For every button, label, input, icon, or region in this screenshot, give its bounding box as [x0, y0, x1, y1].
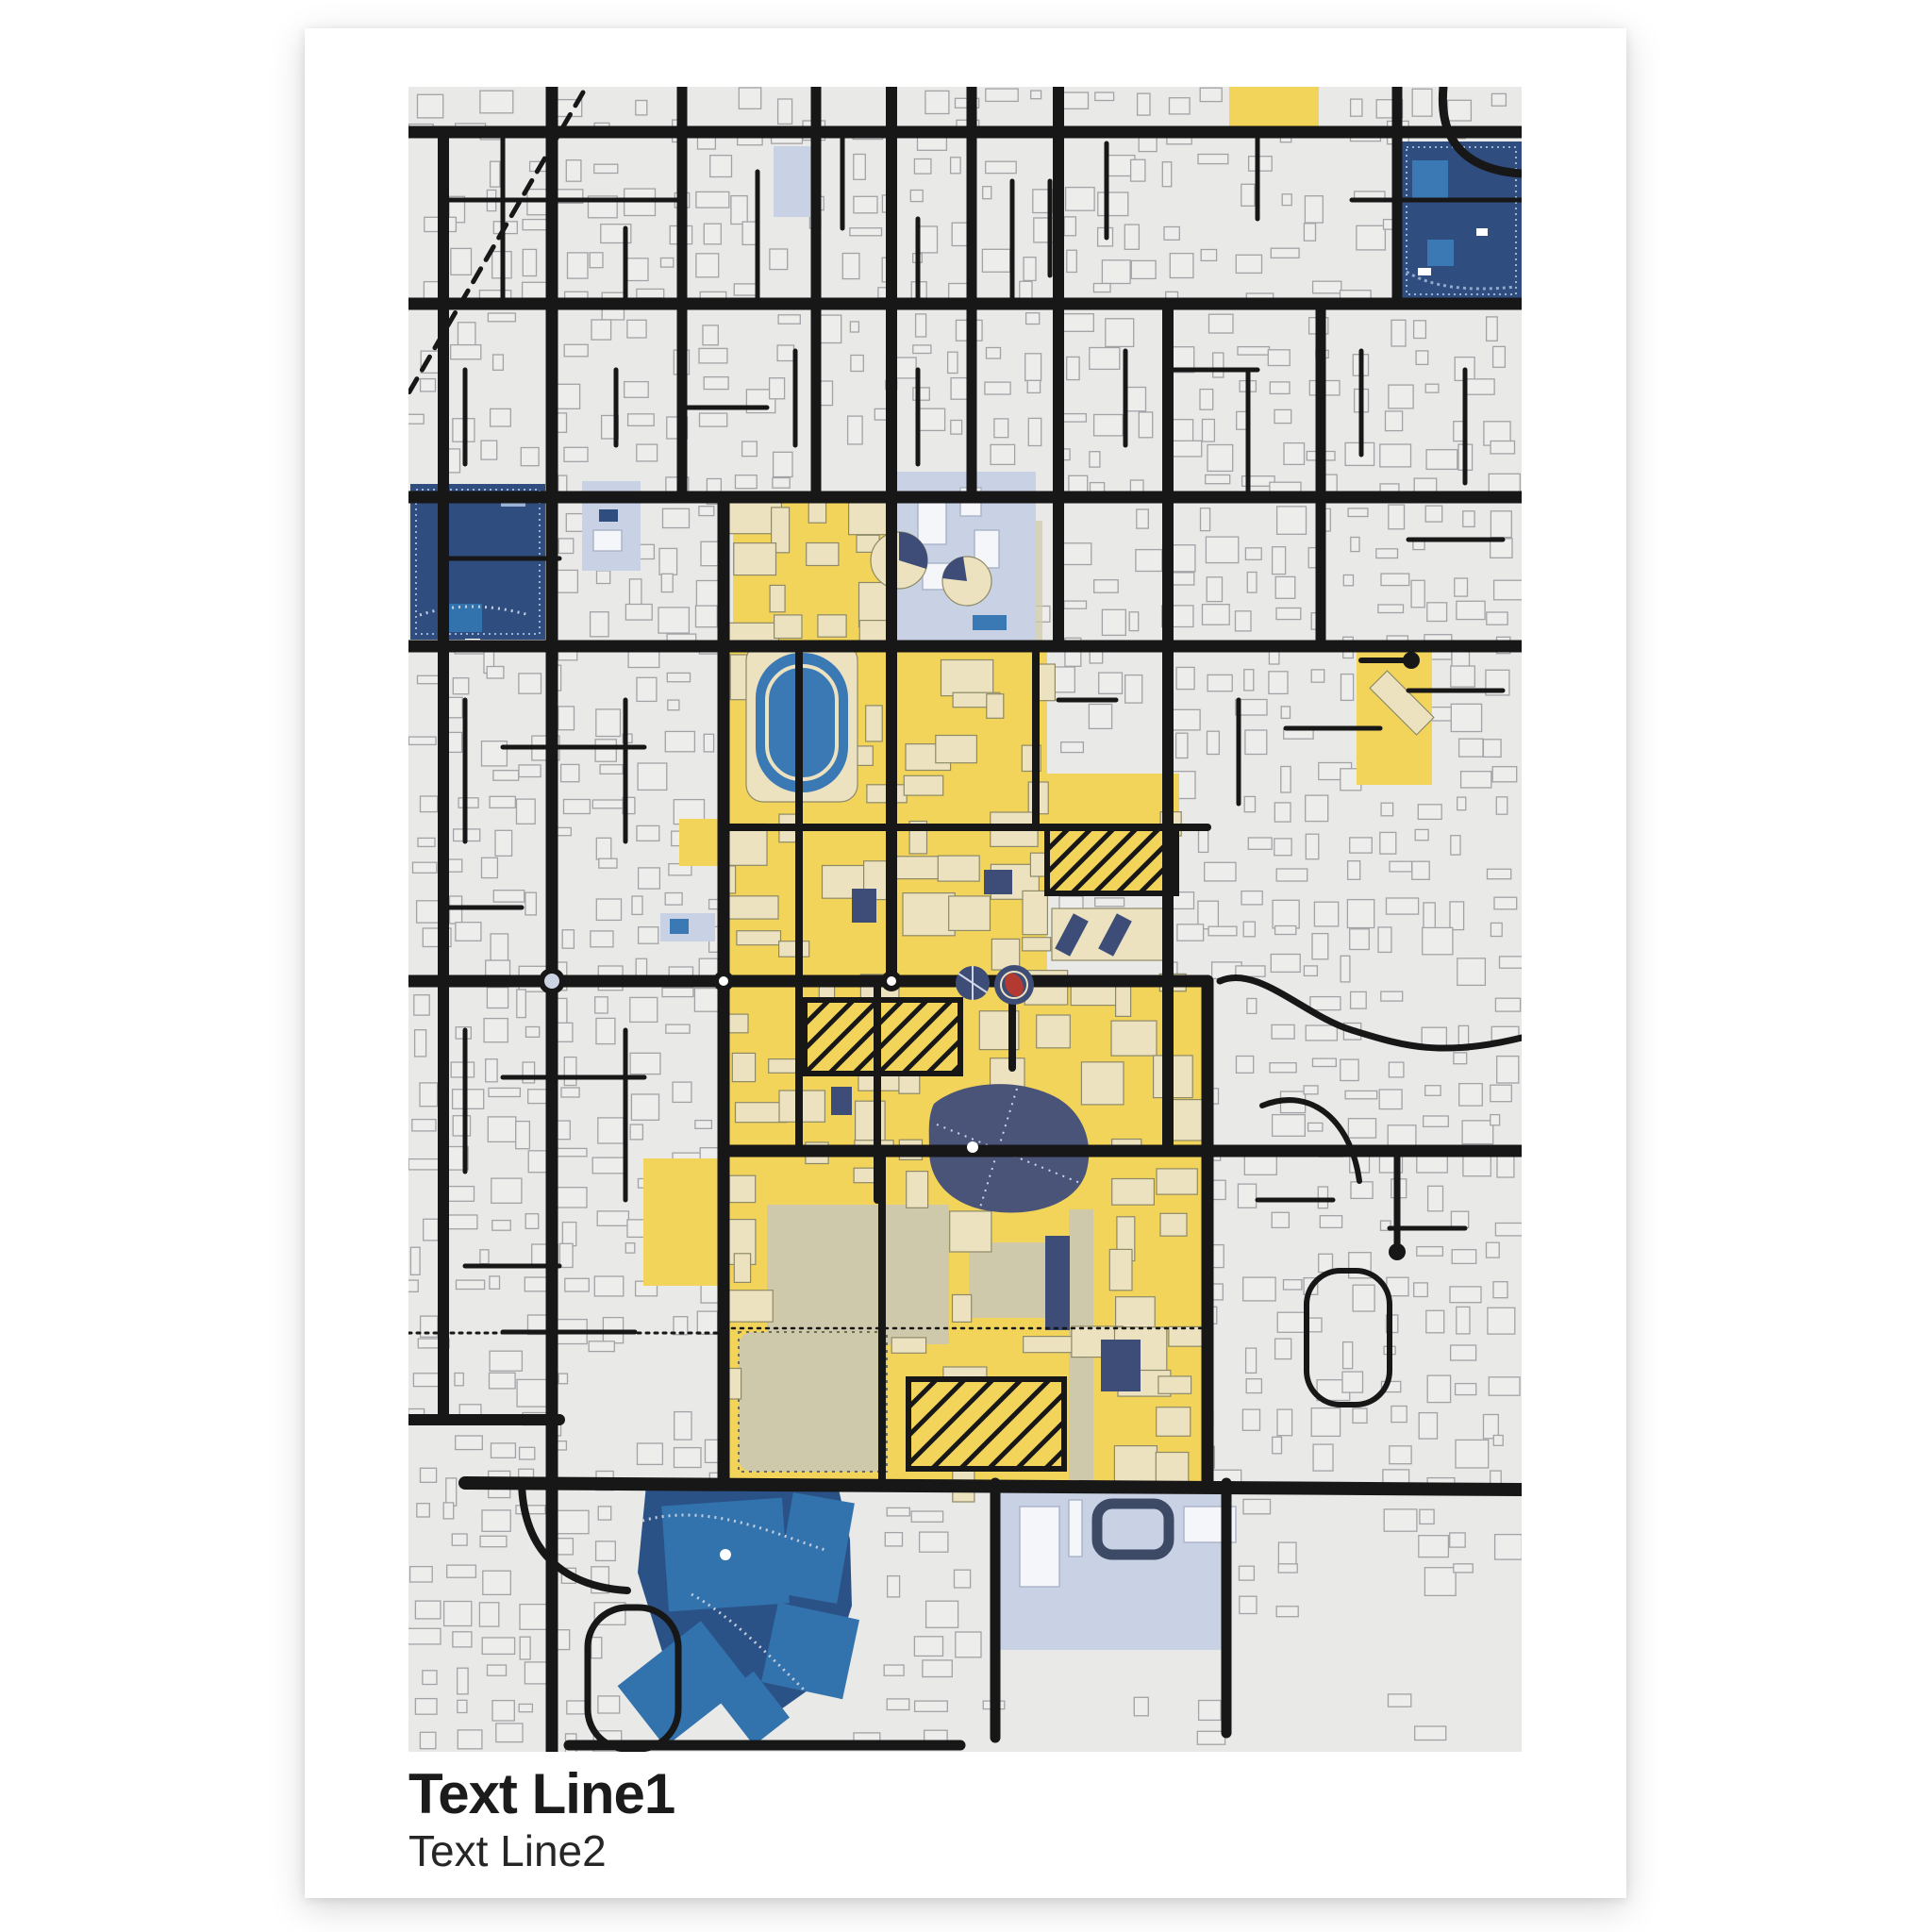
page-background: Text Line1 Text Line2: [0, 0, 1932, 1932]
title-line2: Text Line2: [408, 1828, 675, 1874]
caption-block: Text Line1 Text Line2: [408, 1764, 675, 1874]
map-svg: [408, 87, 1522, 1752]
map-graphic: [408, 87, 1522, 1752]
title-line1: Text Line1: [408, 1764, 675, 1824]
poster: Text Line1 Text Line2: [305, 28, 1626, 1898]
